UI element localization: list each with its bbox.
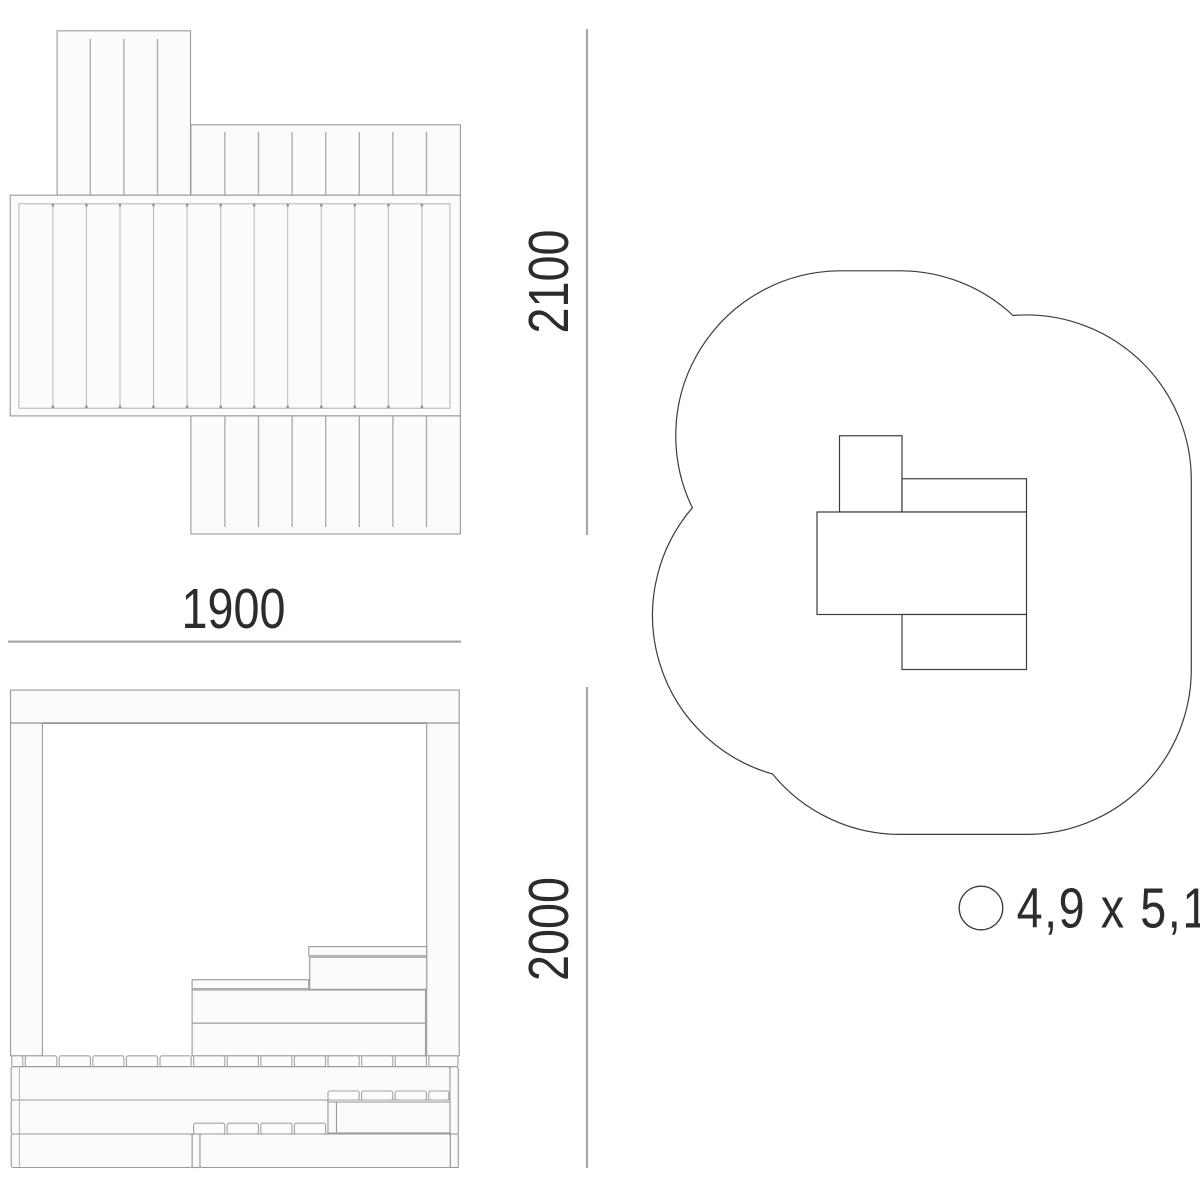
- svg-text:2100: 2100: [518, 230, 581, 334]
- svg-text:1900: 1900: [182, 578, 286, 641]
- svg-text:2000: 2000: [518, 877, 581, 981]
- svg-text:4,9 x 5,1: 4,9 x 5,1: [1017, 877, 1200, 940]
